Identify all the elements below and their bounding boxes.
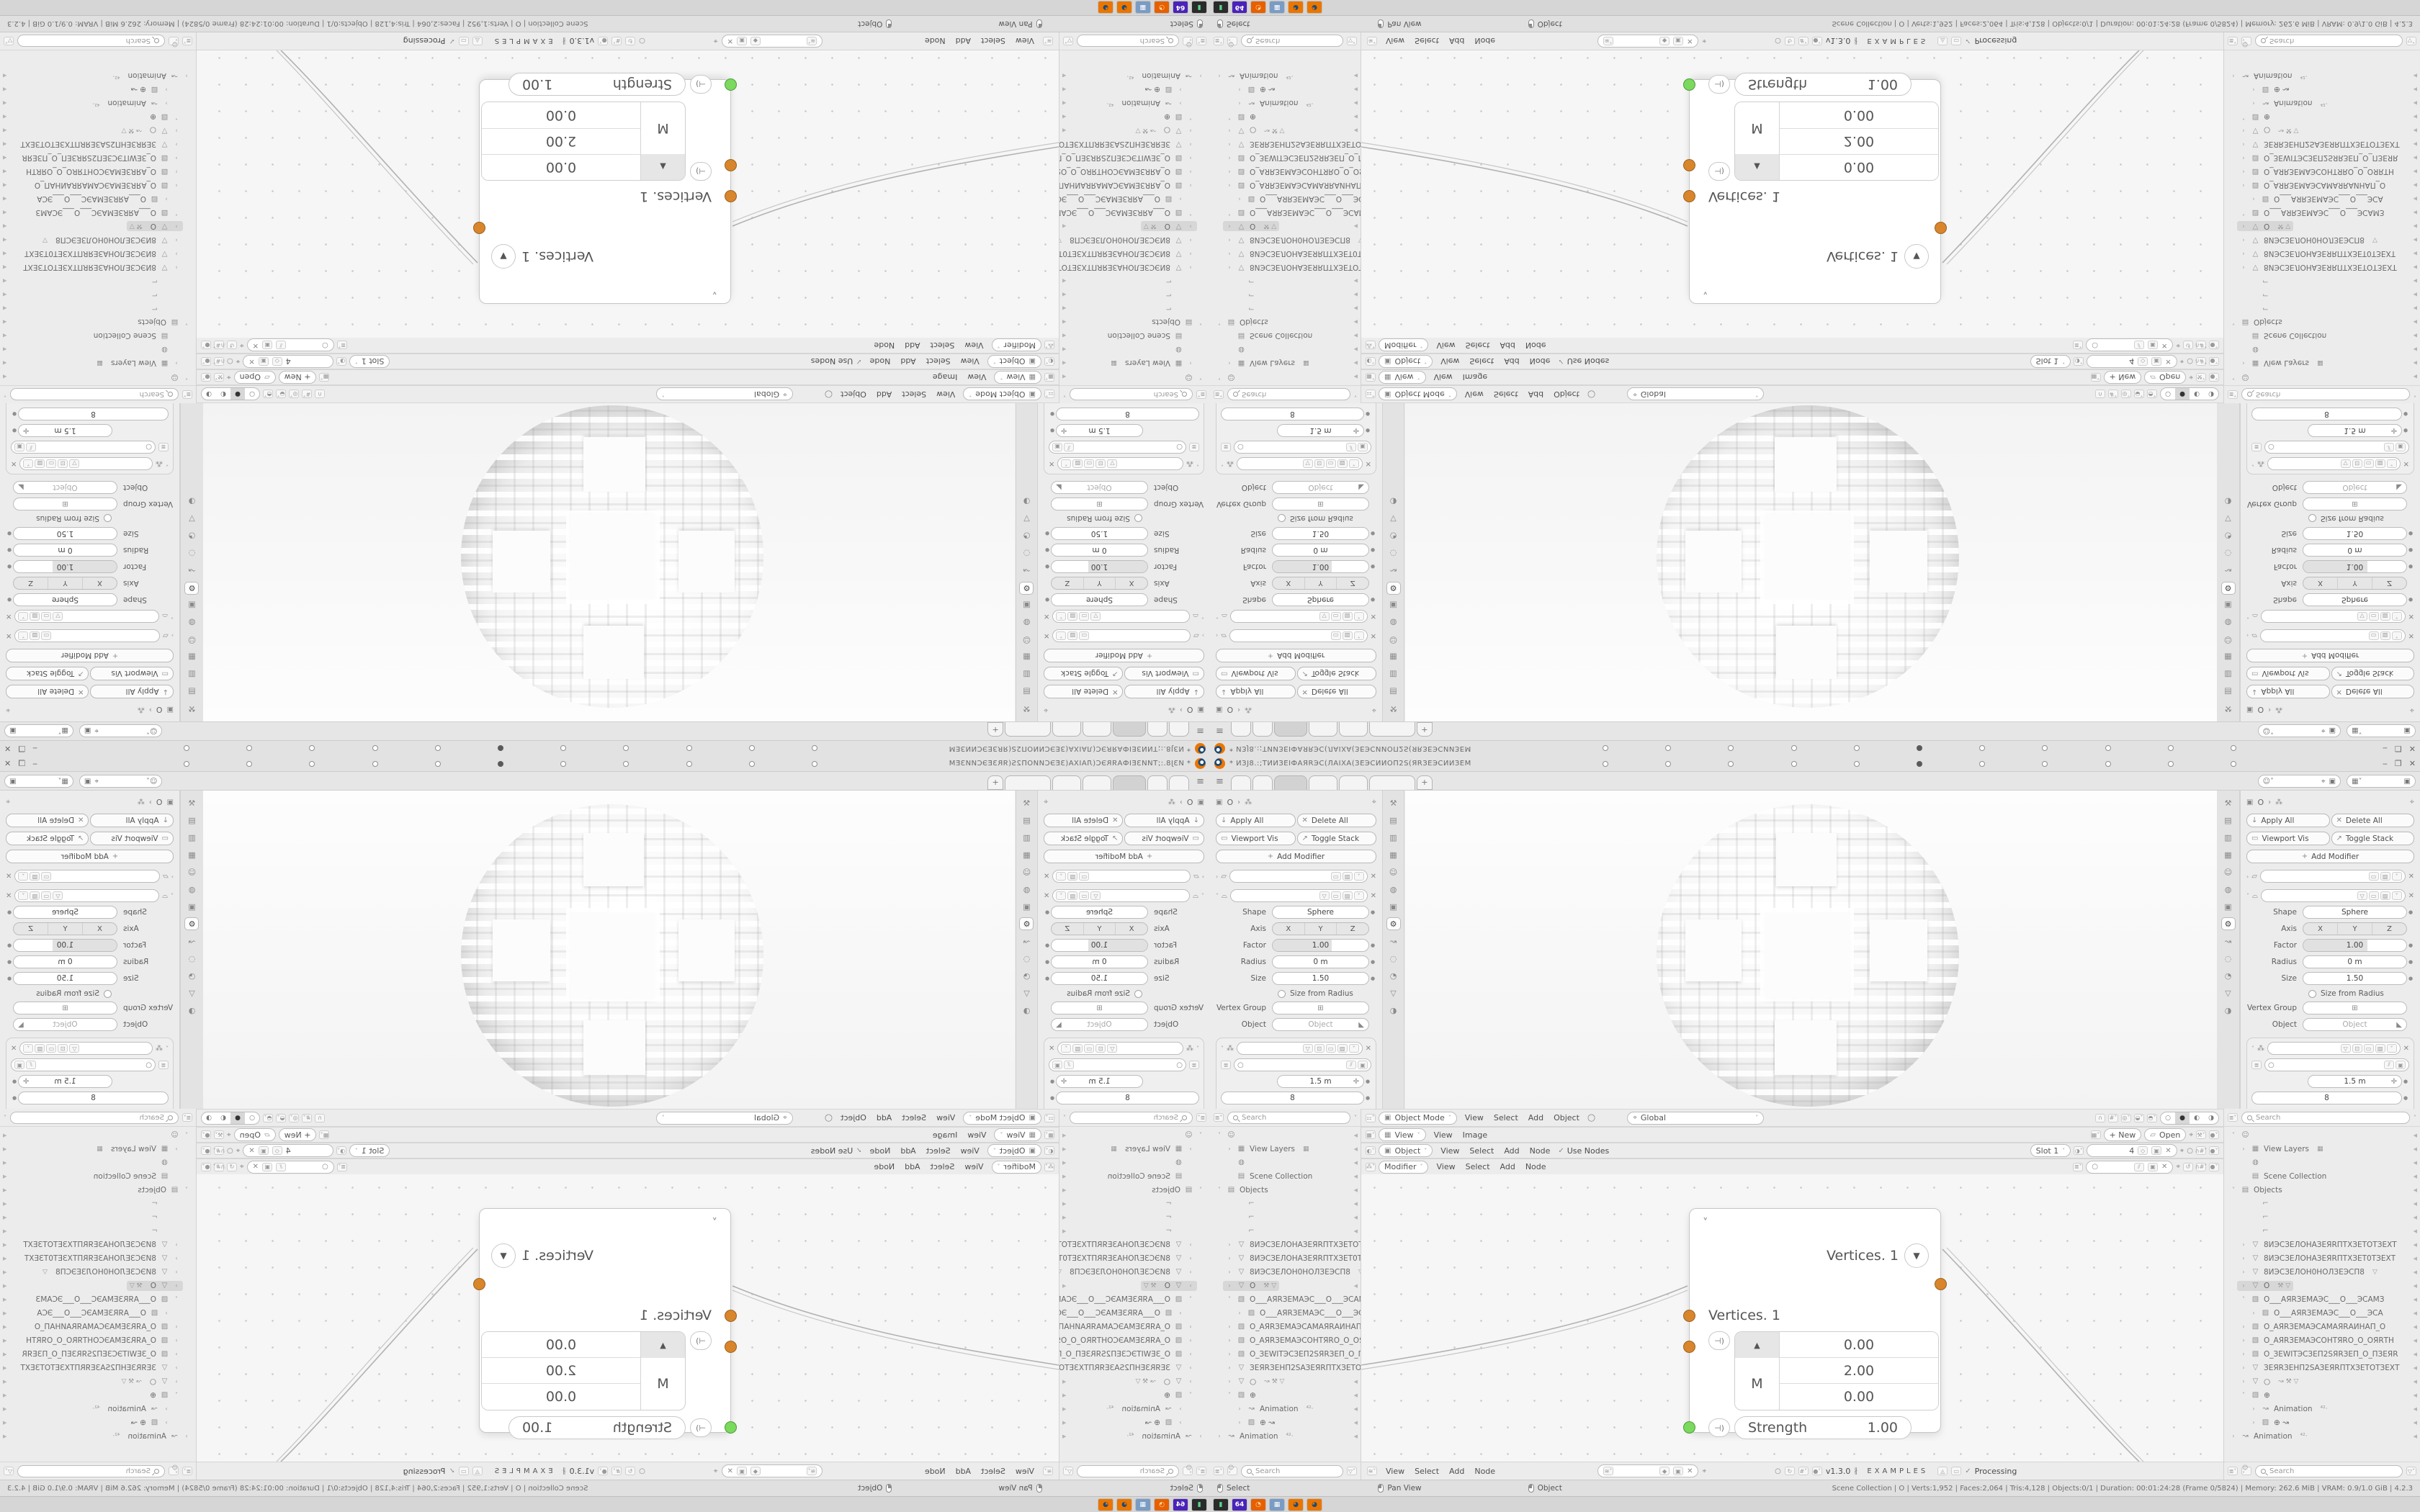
size-from-radius-checkbox[interactable]: Size from Radius (1216, 514, 1376, 523)
expand-chevron-icon[interactable]: › (2240, 1146, 2247, 1152)
expand-chevron-icon[interactable]: › (1226, 1364, 1233, 1371)
close-icon[interactable]: ✕ (2165, 1147, 2171, 1155)
axis-y-button[interactable]: Y (2338, 577, 2372, 589)
outliner-row[interactable]: ◍◀ (0, 343, 196, 356)
use-nodes-label[interactable]: Use Nodes (811, 1146, 853, 1156)
overlay-icon[interactable]: ●˅ (1812, 1467, 1822, 1475)
close-icon[interactable]: ✕ (6, 613, 12, 621)
expand-chevron-icon[interactable]: › (1197, 73, 1204, 79)
visibility-toggle-icon[interactable]: ◀ (1062, 279, 1066, 284)
properties-tab-icon[interactable]: ▣ (2221, 900, 2236, 913)
expand-chevron-icon[interactable]: › (1187, 264, 1194, 271)
outliner-search-input[interactable]: Search (1241, 1465, 1343, 1477)
pin-icon[interactable]: ⌖ (6, 705, 10, 715)
visibility-toggle-icon[interactable]: ◀ (3, 292, 6, 298)
input-attribute-icon[interactable]: ✛ (1353, 427, 1359, 435)
visibility-toggle-icon[interactable]: ◀ (1354, 224, 1358, 230)
outliner-row[interactable]: ›▧O_АЯRЗЕМАЭСОНТЯRО_O_ОЯRТН◀ (2224, 165, 2420, 179)
vector-z-field[interactable]: 0.00 (482, 102, 640, 128)
outliner-row[interactable]: ⌐◀ (2224, 1210, 2420, 1224)
shield-icon[interactable]: ◆ (750, 1467, 761, 1475)
outliner-row[interactable]: ›↝Animation⁴²·◀ (1059, 96, 1210, 110)
edit-mode-toggle-icon[interactable]: ▽ (2357, 891, 2367, 900)
slot-dropdown[interactable]: Slot 1˅ (349, 355, 390, 368)
expand-chevron-icon[interactable]: › (173, 360, 180, 366)
render-toggle-icon[interactable]: ▨ (1343, 631, 1353, 640)
node-editor-menu-view[interactable]: View (1386, 37, 1404, 46)
snap-icon[interactable]: ∩#˅ (2196, 357, 2206, 366)
input-socket-vector[interactable] (1683, 1341, 1695, 1353)
geonodes-menu-node[interactable]: Node (874, 1162, 895, 1171)
scissors-icon[interactable]: ∦ (563, 37, 566, 45)
node-tree-name-field[interactable]: ○ ⫽ ▣ (11, 441, 156, 454)
visibility-toggle-icon[interactable]: ◀ (3, 361, 6, 366)
radius-field[interactable]: 0 m (13, 955, 117, 968)
visibility-toggle-icon[interactable]: ◀ (1354, 114, 1358, 120)
properties-tab-icon[interactable]: ⚙ (185, 917, 200, 930)
visibility-toggle-icon[interactable]: ◀ (1354, 1146, 1358, 1152)
factor-slider[interactable]: 1.00 (13, 939, 117, 952)
geonodes-context-dropdown[interactable]: Modifier˅ (992, 1161, 1041, 1174)
animate-dot[interactable]: ● (1369, 942, 1376, 948)
visibility-toggle-icon[interactable]: ◀ (3, 1187, 6, 1193)
visibility-toggle-icon[interactable]: ◀ (2414, 279, 2417, 284)
shading-mode-button[interactable]: ● (230, 389, 245, 400)
viewport-vis-button[interactable]: ▭Viewport Vis (1125, 832, 1205, 845)
properties-tab-icon[interactable]: ▤ (185, 685, 200, 698)
node-editor-menu-select[interactable]: Select (1415, 37, 1439, 46)
input-plug-icon[interactable]: ⊣) (1708, 162, 1730, 181)
node-tree-name-field[interactable]: ≋˅ ◆ ▣ ✕ (1597, 35, 1698, 48)
properties-tab-icon[interactable]: ▥ (1020, 668, 1034, 681)
visibility-toggle-icon[interactable]: ◀ (1062, 1160, 1066, 1166)
properties-tab-icon[interactable]: ▥ (1386, 831, 1401, 844)
outliner-row[interactable]: ›▧O_АЯRЗЕМАЭСАМАЯRАИНАП_O◀ (1210, 179, 1361, 192)
render-toggle-icon[interactable]: ▨ (35, 459, 45, 468)
monitor-icon[interactable]: ▭ (1951, 1467, 1961, 1475)
expand-chevron-icon[interactable]: › (1187, 155, 1194, 161)
snap-magnet-icon[interactable]: ∩ (2095, 1114, 2105, 1122)
outliner-row[interactable]: ›▽ЗЕЯRЗЕНП2SАЗЕЯRПТХЗЕТОТЗЕХТ◀ (1059, 1361, 1210, 1374)
visibility-toggle-icon[interactable]: ◀ (3, 169, 6, 175)
modifier-name-field[interactable]: ▭ ▨ ˅ (1052, 870, 1191, 883)
copy-icon[interactable]: ▣ (2151, 1146, 2161, 1155)
properties-tab-icon[interactable]: ⚙ (1386, 582, 1401, 595)
material-name-field[interactable]: 4 ◇ ▣ ✕ (243, 355, 333, 368)
outliner-row[interactable]: ›▽ЗЕЯRЗЕНП2SАЗЕЯRПТХЗЕТОТЗЕХТ◀ (1210, 1361, 1361, 1374)
viewport-vis-button[interactable]: ▭Viewport Vis (2246, 667, 2330, 680)
axis-y-button[interactable]: Y (48, 923, 82, 935)
node-editor-menu-select[interactable]: Select (981, 1467, 1005, 1476)
outliner-row[interactable]: ˅▧O___АЯRЗЕМАЭС___O___ЭСАМЗ◀ (1059, 1292, 1210, 1306)
visibility-toggle-icon[interactable]: ◀ (1062, 1406, 1066, 1412)
vector-z-field[interactable]: 0.00 (1780, 102, 1938, 128)
visibility-toggle-icon[interactable]: ◀ (2414, 1434, 2417, 1439)
tool-circle-icon[interactable]: ○ (825, 1112, 833, 1123)
pin-icon[interactable]: ⌖ (2176, 341, 2180, 349)
vertex-group-field[interactable]: ⊞ (1272, 498, 1369, 510)
visibility-toggle-icon[interactable]: ◀ (1062, 1174, 1066, 1179)
shader-context-dropdown[interactable]: ▣Object˅ (987, 355, 1041, 368)
viewport-menu-object[interactable]: Object (841, 390, 866, 399)
visibility-toggle-icon[interactable]: ◀ (2414, 1420, 2417, 1426)
visibility-toggle-icon[interactable]: ◀ (1062, 1420, 1066, 1426)
image-menu-view[interactable]: View (1434, 1130, 1453, 1140)
close-icon[interactable]: ✕ (6, 892, 12, 900)
node-tree-icon[interactable]: ≣˅ (2073, 341, 2083, 350)
chevron-down-icon[interactable]: ˅ (2392, 891, 2402, 900)
properties-tab-icon[interactable]: ↝ (1020, 935, 1034, 948)
shading-mode-group[interactable]: ○●◐◑ (201, 388, 260, 401)
animate-dot[interactable]: ● (1049, 411, 1056, 417)
expand-chevron-icon[interactable]: › (183, 73, 190, 79)
viewport-menu-view[interactable]: View (1465, 1113, 1484, 1122)
outliner-search-input[interactable]: Search (1070, 389, 1193, 401)
visibility-toggle-icon[interactable]: ◀ (1354, 1420, 1358, 1426)
eyedropper-icon[interactable]: ◣ (2396, 484, 2402, 492)
funnel-icon[interactable]: ▽˅ (4, 1467, 14, 1475)
shield-icon[interactable]: ◆ (750, 37, 761, 45)
modifier-name-field[interactable]: ▭ ▨ ˅ (2260, 870, 2406, 883)
overlay-icon[interactable]: ●˅ (201, 1163, 211, 1171)
size-from-radius-checkbox[interactable]: Size from Radius (6, 514, 174, 523)
proportional-edit-icon[interactable]: ◎˅ (289, 1114, 299, 1122)
vector-x-field[interactable]: 0.00 (482, 154, 640, 180)
modifier-name-field[interactable]: ▭ ▨ ˅ (1229, 870, 1368, 883)
render-toggle-icon[interactable]: ▨ (1343, 891, 1353, 900)
expand-chevron-icon[interactable]: › (173, 141, 180, 148)
outliner-row[interactable]: ⌐◀ (2224, 1197, 2420, 1210)
snap-icon[interactable]: #˅ (1798, 1467, 1809, 1475)
vector-up-button[interactable]: ▲ (1735, 154, 1779, 180)
properties-tab-icon[interactable]: ◔ (1020, 530, 1034, 543)
viewport-menu-view[interactable]: View (936, 390, 955, 399)
blender-icon[interactable]: ◕ (1116, 1, 1132, 14)
node-editor-menu-select[interactable]: Select (1415, 1467, 1439, 1476)
outliner-row[interactable]: ›▽O⚒ ▽◀ (0, 1279, 196, 1292)
menu-hamburger-icon[interactable]: ≡ (1196, 776, 1204, 787)
outliner-row[interactable]: ⌐◀ (2224, 274, 2420, 288)
fake-user-icon[interactable]: ⫽ (1064, 443, 1074, 451)
expand-chevron-icon[interactable]: › (173, 264, 180, 271)
geonodes-menu-add[interactable]: Add (1500, 341, 1515, 350)
modifier-name-field[interactable]: ▽ ⊡ ▭ ▨ ˅ (19, 457, 153, 470)
outliner-row[interactable]: ›▦View Layers▦◀ (0, 356, 196, 370)
outliner-row[interactable]: ▤Scene Collection◀ (1059, 329, 1210, 343)
scene-mode-icon[interactable]: ☺˅ (169, 1467, 179, 1475)
outliner-row[interactable]: ›▦View Layers▦◀ (1210, 356, 1361, 370)
visibility-toggle-icon[interactable]: ◀ (2414, 347, 2417, 353)
filter-icon[interactable]: ≣˅ (1214, 1467, 1224, 1475)
shape-dropdown[interactable]: Sphere (13, 593, 117, 606)
outliner-row[interactable]: ⌐◀ (0, 288, 196, 302)
animate-dot[interactable]: ● (2402, 428, 2409, 433)
node-tree-name-field[interactable]: ○ ⫽ ▣ ✕ (2086, 1161, 2173, 1174)
axis-z-button[interactable]: Z (2372, 577, 2406, 589)
node-editor-menu-add[interactable]: Add (956, 1467, 971, 1476)
expand-chevron-icon[interactable]: › (173, 1241, 180, 1248)
visibility-toggle-icon[interactable]: ◀ (2414, 1242, 2417, 1248)
outliner-row[interactable]: ›▧O_ЗЕWІТЭСЗЕП2SЯRЗЕП_O_ПЗЕЯR◀ (1210, 1347, 1361, 1361)
fake-user-icon[interactable]: ⫽ (276, 341, 286, 350)
outliner-row[interactable]: ›▽8ИЭСЗЕЛОНАЗЕЯRПТХЗЕТОТЗЕХТ◀ (2224, 261, 2420, 274)
visibility-toggle-icon[interactable]: ◀ (3, 1201, 6, 1207)
keyframe-icon[interactable] (560, 745, 566, 751)
overlay-icon[interactable]: ●˅ (2209, 357, 2219, 366)
close-button[interactable]: ✕ (2409, 759, 2416, 768)
viewport-menu-view[interactable]: View (936, 1113, 955, 1122)
copy-icon[interactable]: ▣ (2404, 778, 2411, 786)
realtime-toggle-icon[interactable]: ▭ (1084, 459, 1094, 468)
pin-icon[interactable]: ⌖ (1702, 1467, 1706, 1475)
input-attribute-icon[interactable]: ✛ (2391, 427, 2397, 435)
keyframe-icon[interactable] (1791, 761, 1797, 767)
chevron-down-icon[interactable]: ˅ (1354, 612, 1364, 621)
animate-dot[interactable]: ● (2402, 1095, 2409, 1101)
expand-chevron-icon[interactable]: › (163, 1419, 170, 1426)
mode-dropdown[interactable]: ▣Object Mode˅ (963, 388, 1041, 401)
outliner-row[interactable]: ›▨O___АЯRЗЕМАЭС___O___ЭСА◀ (1210, 1306, 1361, 1320)
expand-chevron-icon[interactable]: › (1187, 360, 1194, 366)
workspace-tab[interactable] (1274, 775, 1307, 790)
close-icon[interactable]: ✕ (2161, 341, 2167, 349)
pin-icon[interactable]: ⌖ (714, 1467, 718, 1475)
viewport-3d[interactable] (203, 403, 1015, 721)
chevron-down-icon[interactable]: ˅ (18, 872, 28, 881)
outliner-row[interactable]: ›▽8ИЭСЗЕЛОНАЗЕЯRПТХЗЕТ0ТЗЕХТ◀ (1059, 247, 1210, 261)
workspace-tab[interactable] (1147, 775, 1168, 790)
node-tree-icon[interactable]: ≣˅ (2073, 1163, 2083, 1171)
monitor-icon[interactable]: ▭ (459, 37, 469, 45)
copy-icon[interactable]: ▣ (9, 727, 16, 735)
apply-all-button[interactable]: ↓Apply All (91, 814, 174, 827)
visibility-toggle-icon[interactable]: ◀ (2414, 1269, 2417, 1275)
node-tree-selector[interactable]: ≣ ○ ⫽ ▣ (11, 441, 169, 454)
outliner-row[interactable]: ˅▧O___АЯRЗЕМАЭС___O___ЭСАМЗ◀ (2224, 1292, 2420, 1306)
shader-menu-add[interactable]: Add (1504, 357, 1519, 366)
add-workspace-button[interactable]: + (987, 722, 1003, 737)
visibility-toggle-icon[interactable]: ◀ (3, 1324, 6, 1330)
expand-chevron-icon[interactable]: › (2240, 237, 2247, 243)
properties-tab-icon[interactable]: ▽ (1386, 513, 1401, 526)
eyedropper-icon[interactable]: ◣ (1056, 1021, 1062, 1029)
modifier-row-geonodes[interactable]: ˅ ⁂ ▽ ⊡ ▭ ▨ ˅ ✕ (2251, 457, 2409, 470)
viewlayer-selector[interactable]: ▦˅ ▣ (4, 775, 73, 788)
vector-x-field[interactable]: 0.00 (1780, 1332, 1938, 1358)
outliner-row[interactable]: ⌐◀ (1059, 1197, 1210, 1210)
visibility-toggle-icon[interactable]: ◀ (3, 1215, 6, 1220)
geonodes-input-field[interactable]: 1.5 m ✛ (1056, 424, 1143, 437)
visibility-toggle-icon[interactable]: ◀ (2414, 1310, 2417, 1316)
close-icon[interactable]: ✕ (2165, 358, 2171, 366)
keyframe-icon[interactable] (1917, 761, 1922, 767)
properties-tab-icon[interactable]: ▦ (2221, 848, 2236, 861)
visibility-toggle-icon[interactable]: ◀ (1062, 73, 1066, 79)
outliner-row[interactable]: ›↝Animation⁴²·◀ (1210, 96, 1361, 110)
expand-chevron-icon[interactable]: › (2240, 360, 2247, 366)
visibility-toggle-icon[interactable]: ◀ (2414, 1351, 2417, 1357)
shader-context-dropdown[interactable]: ▣Object˅ (987, 1144, 1041, 1157)
gizmo-toggle-icon[interactable]: ◒˅ (276, 1114, 286, 1122)
image-context-dropdown[interactable]: ▦View˅ (1379, 371, 1426, 384)
properties-tab-icon[interactable]: ☺ (1020, 634, 1034, 647)
snap-magnet-icon[interactable]: ∩ (2095, 390, 2105, 399)
properties-tab-icon[interactable]: ▦ (1386, 848, 1401, 861)
visibility-toggle-icon[interactable]: ◀ (3, 265, 6, 271)
axis-z-button[interactable]: Z (2372, 923, 2406, 935)
animate-dot[interactable]: ● (6, 597, 13, 603)
apply-all-button[interactable]: ↓Apply All (1216, 685, 1296, 698)
radius-field[interactable]: 0 m (1272, 544, 1369, 557)
input-socket-vector[interactable] (1683, 159, 1695, 171)
input-socket-strength[interactable] (1683, 78, 1695, 91)
outliner-row[interactable]: ˅▤Objects◀ (1059, 315, 1210, 329)
outliner-row[interactable]: ›▽8ИЭСЗЕЛОНАЗЕЯRПТХЗЕТОТЗЕХТ◀ (1059, 261, 1210, 274)
node-tree-icon[interactable]: ≣˅ (337, 1163, 347, 1171)
outliner-row[interactable]: ›↝Animation⁴²·◀ (1059, 69, 1210, 83)
visibility-toggle-icon[interactable]: ◀ (3, 1133, 6, 1138)
shading-mode-group[interactable]: ○●◐◑ (2160, 1112, 2219, 1125)
axis-z-button[interactable]: Z (1052, 923, 1083, 935)
animate-dot[interactable]: ● (1369, 597, 1376, 603)
workspace-tab[interactable] (1169, 722, 1189, 737)
add-modifier-button[interactable]: +Add Modifier (2246, 649, 2414, 662)
visibility-toggle-icon[interactable]: ◀ (2414, 169, 2417, 175)
outliner-row[interactable]: ›▽O⚒ ▽◀ (2224, 220, 2420, 233)
expand-chevron-icon[interactable]: ˅ (183, 1132, 190, 1138)
fake-user-icon[interactable]: ⫽ (26, 443, 36, 451)
strength-slider[interactable]: Strength 1.00 (508, 1416, 686, 1439)
realtime-toggle-icon[interactable]: ▭ (2364, 1044, 2374, 1053)
outliner-row[interactable]: ˅▧⊕◀ (0, 1388, 196, 1402)
monitor-icon[interactable]: ▭ (1951, 37, 1961, 45)
fake-user-icon[interactable]: ⫽ (1346, 1061, 1356, 1069)
animate-dot[interactable]: ● (1364, 1095, 1371, 1101)
visibility-toggle-icon[interactable]: ◀ (2414, 1215, 2417, 1220)
visibility-toggle-icon[interactable]: ◀ (2414, 210, 2417, 216)
pin-icon[interactable]: ⌖ (227, 1131, 231, 1139)
outliner-row[interactable]: ›▽8ИЭСЗЕЛОНАЗЕЯRПТХЗЕТОТЗЕХТ◀ (2224, 1238, 2420, 1251)
animate-dot[interactable]: ● (1369, 547, 1376, 553)
editor-type-icon[interactable]: ◐˅ (1044, 357, 1054, 366)
tool-icon[interactable]: ⚒˅ (214, 1130, 224, 1139)
modifier-row-geonodes[interactable]: ˅ ⁂ ▽ ⊡ ▭ ▨ ˅ ✕ (2251, 1042, 2409, 1055)
editor-type-icon[interactable]: ≋˅ (1043, 37, 1053, 45)
properties-tab-icon[interactable]: ◌ (185, 952, 200, 965)
properties-tab-icon[interactable]: ⚒ (2221, 796, 2236, 809)
outliner-row[interactable]: ›↝Animation⁴²·◀ (2224, 1429, 2420, 1443)
axis-x-button[interactable]: X (1273, 923, 1305, 935)
shader-context-dropdown[interactable]: ▣Object˅ (1379, 355, 1433, 368)
animate-dot[interactable]: ● (2407, 564, 2414, 570)
input-plug-icon[interactable]: ⊣) (690, 1418, 712, 1437)
fake-user-icon[interactable]: ⫽ (1064, 1061, 1074, 1069)
keyframe-icon[interactable] (1603, 745, 1608, 751)
visibility-toggle-icon[interactable]: ◀ (1354, 347, 1358, 353)
object-field[interactable]: Object ◣ (2303, 1018, 2407, 1031)
properties-tab-icon[interactable]: ▽ (1020, 513, 1034, 526)
expand-chevron-icon[interactable]: › (173, 251, 180, 257)
radius-field[interactable]: 0 m (1272, 955, 1369, 968)
outliner-row[interactable]: ›▨⊕ ↝◀ (0, 83, 196, 96)
node-tree-name-field[interactable]: ○ ⫽ ▣ (1234, 441, 1371, 454)
viewport-menu-select[interactable]: Select (1494, 1113, 1518, 1122)
chevron-down-icon[interactable]: ˅ (1056, 872, 1066, 881)
axis-toggle-group[interactable]: X Y Z (1051, 577, 1148, 590)
pin-icon[interactable]: ⌖ (1372, 797, 1376, 807)
visibility-toggle-icon[interactable]: ◀ (1354, 1201, 1358, 1207)
image-menu-image[interactable]: Image (933, 1130, 957, 1140)
keyframe-icon[interactable] (1665, 745, 1671, 751)
factor-slider[interactable]: 1.00 (1051, 560, 1148, 573)
chevron-down-icon[interactable]: ˅ (1349, 1044, 1359, 1053)
visibility-toggle-icon[interactable]: ◀ (3, 251, 6, 257)
copy-icon[interactable]: ▣ (2148, 1163, 2158, 1171)
visibility-toggle-icon[interactable]: ◀ (2414, 292, 2417, 298)
properties-tab-icon[interactable]: ⚒ (1020, 703, 1034, 716)
keyframe-icon[interactable] (372, 761, 378, 767)
pin-icon[interactable]: ⌖ (714, 37, 718, 45)
outliner-row[interactable]: ›↝Animation⁴²·◀ (0, 96, 196, 110)
properties-tab-icon[interactable]: ▣ (2221, 599, 2236, 612)
examples-label[interactable]: EXAMPLES (492, 1467, 553, 1475)
visibility-toggle-icon[interactable]: ◀ (2414, 197, 2417, 202)
expand-chevron-icon[interactable]: › (2240, 1364, 2247, 1371)
vector-z-field[interactable]: 0.00 (482, 1384, 640, 1410)
expand-chevron-icon[interactable]: › (1236, 1405, 1243, 1412)
material-sphere-icon[interactable]: ◑˅ (336, 357, 346, 366)
chevron-down-icon[interactable]: ˅ (4, 392, 6, 398)
expand-chevron-icon[interactable]: ˅ (2230, 1132, 2237, 1138)
outliner-search-input[interactable]: Search (2255, 1465, 2403, 1477)
factor-slider[interactable]: 1.00 (2303, 560, 2407, 573)
eyedropper-icon[interactable]: ◣ (1358, 484, 1364, 492)
axis-x-button[interactable]: X (2303, 923, 2338, 935)
geonodes-input-field[interactable]: 1.5 m ✛ (2308, 1075, 2402, 1088)
outliner-row[interactable]: ›↝Animation⁴²·◀ (2224, 1402, 2420, 1416)
properties-tab-icon[interactable]: ◑ (2221, 495, 2236, 508)
realtime-toggle-icon[interactable]: ▭ (1084, 1044, 1094, 1053)
visibility-toggle-icon[interactable]: ◀ (3, 374, 6, 380)
render-toggle-icon[interactable]: ▨ (2380, 891, 2390, 900)
visibility-toggle-icon[interactable]: ◀ (3, 1269, 6, 1275)
add-workspace-button[interactable]: + (987, 775, 1003, 790)
chevron-down-icon[interactable]: ˅ (4, 1115, 6, 1121)
copy-icon[interactable]: ▣ (737, 1467, 747, 1475)
toggle-stack-button[interactable]: ↗Toggle Stack (6, 667, 89, 680)
vector-up-button[interactable]: ▲ (641, 154, 685, 180)
funnel-icon[interactable]: ▽˅ (4, 37, 14, 45)
expand-chevron-icon[interactable]: › (1236, 100, 1243, 107)
copy-icon[interactable]: ▣ (1358, 443, 1368, 451)
modifier-row-geonodes[interactable]: ˅ ⁂ ▽ ⊡ ▭ ▨ ˅ ✕ (1221, 1042, 1371, 1055)
workspace-tab[interactable] (1005, 722, 1051, 737)
visibility-toggle-icon[interactable]: ◀ (2414, 1365, 2417, 1371)
add-workspace-button[interactable]: + (1417, 775, 1433, 790)
collapse-chevron-icon[interactable]: ˅ (1703, 1216, 1708, 1229)
realtime-toggle-icon[interactable]: ▭ (46, 459, 56, 468)
keyframe-icon[interactable] (2042, 745, 2048, 751)
expand-chevron-icon[interactable]: › (2240, 182, 2247, 189)
visibility-toggle-icon[interactable]: ◀ (1062, 347, 1066, 353)
radius-field[interactable]: 0 m (1051, 544, 1148, 557)
use-nodes-check-icon[interactable]: ✓ (1558, 1147, 1564, 1155)
editor-type-icon[interactable]: ⁂˅ (1044, 1163, 1054, 1171)
editor-type-icon[interactable]: ⁂˅ (1366, 341, 1376, 350)
image-menu-view[interactable]: View (1434, 373, 1453, 382)
outliner-row[interactable]: ›▧O_АЯRЗЕМАЭСОНТЯRО_O_ОЯRТН◀ (1210, 1333, 1361, 1347)
expand-chevron-icon[interactable]: ˅ (1187, 210, 1194, 216)
